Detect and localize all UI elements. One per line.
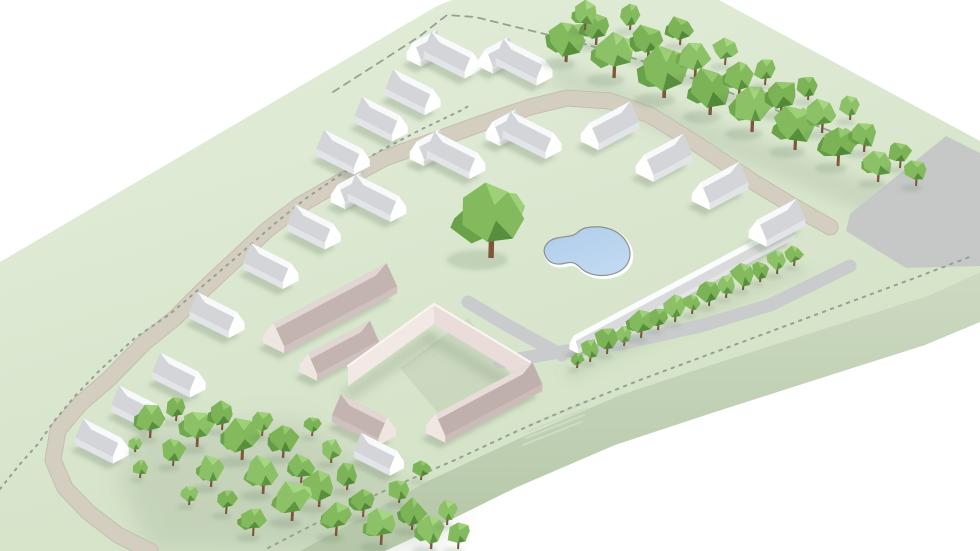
tree-shadow [815, 163, 847, 174]
tree-shadow [126, 452, 139, 456]
tree-shadow [859, 180, 886, 189]
tree-shadow [900, 184, 922, 191]
tree-shadow [442, 547, 464, 551]
tree-shadow [568, 368, 581, 372]
site-render-canvas [0, 0, 980, 551]
tree-shadow [680, 313, 696, 318]
tree-shadow [683, 111, 721, 124]
tree-shadow [709, 63, 731, 70]
tree-shadow [884, 166, 906, 173]
tree-shadow [663, 43, 686, 51]
tree-shadow [624, 336, 647, 344]
tree-shadow [212, 513, 232, 520]
tree-shadow [269, 518, 301, 529]
site-plan-render [0, 0, 980, 551]
tree-shadow [763, 273, 783, 280]
tree-shadow [130, 478, 144, 483]
tree-shadow [346, 515, 369, 523]
tree-shadow [769, 146, 805, 158]
tree-shadow [727, 288, 749, 295]
tree-shadow [794, 99, 814, 106]
tree-shadow [177, 504, 193, 509]
tree-shadow [248, 435, 268, 442]
tree-shadow [836, 119, 856, 126]
tree-shadow [241, 491, 272, 501]
tree-shadow [748, 281, 764, 286]
tree-shadow [331, 488, 353, 495]
tree-shadow [634, 93, 675, 107]
tree-shadow [614, 28, 636, 35]
tree-shadow [568, 28, 591, 36]
tree-shadow [713, 297, 731, 303]
tree-shadow [782, 265, 798, 270]
tree-shadow [300, 435, 316, 440]
tree-shadow [693, 304, 715, 311]
tree-shadow [317, 534, 344, 543]
tree-shadow [591, 352, 613, 359]
tree-shadow [725, 128, 763, 141]
tree-shadow [587, 74, 625, 87]
tree-shadow [317, 462, 337, 469]
tree-shadow [541, 58, 575, 69]
tree-shadow [645, 329, 663, 335]
tree-shadow [659, 320, 681, 327]
tree-shadow [236, 534, 259, 542]
tree-shadow [749, 83, 771, 90]
tree-shadow [612, 345, 628, 350]
tree-shadow [447, 250, 508, 270]
tree-shadow [409, 479, 425, 484]
tree-shadow [157, 464, 179, 471]
